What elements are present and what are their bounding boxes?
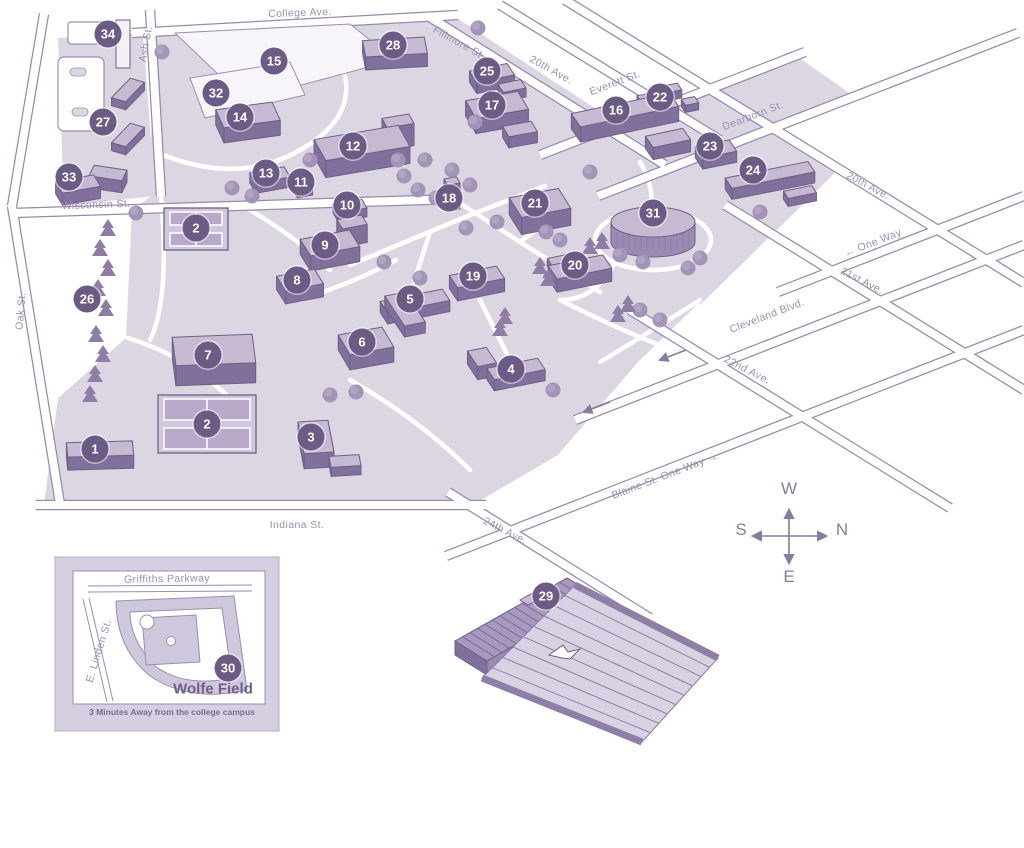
building-marker-19[interactable]: 19 <box>460 263 487 290</box>
building-marker-6[interactable]: 6 <box>349 329 376 356</box>
building-marker-18[interactable]: 18 <box>436 185 463 212</box>
compass-letter-n: N <box>836 520 848 540</box>
inset-field-name: Wolfe Field <box>173 681 253 698</box>
building-marker-26[interactable]: 26 <box>74 286 101 313</box>
building-marker-8[interactable]: 8 <box>284 267 311 294</box>
building-marker-30[interactable]: 30 <box>215 655 242 682</box>
building-marker-24[interactable]: 24 <box>740 157 767 184</box>
building-marker-1[interactable]: 1 <box>82 436 109 463</box>
building-marker-32[interactable]: 32 <box>203 80 230 107</box>
compass-and-inset-art <box>55 510 826 731</box>
building-marker-17[interactable]: 17 <box>479 92 506 119</box>
building-marker-2[interactable]: 2 <box>194 411 221 438</box>
building-marker-23[interactable]: 23 <box>697 133 724 160</box>
building-marker-25[interactable]: 25 <box>474 58 501 85</box>
building-marker-34[interactable]: 34 <box>95 21 122 48</box>
building-marker-20[interactable]: 20 <box>562 252 589 279</box>
street-label-college-ave: College Ave. <box>268 6 332 20</box>
compass-letter-e: E <box>783 567 794 587</box>
building-marker-12[interactable]: 12 <box>340 133 367 160</box>
building-marker-21[interactable]: 21 <box>522 190 549 217</box>
compass-letter-s: S <box>735 520 746 540</box>
inset-note: 3 Minutes Away from the college campus <box>89 707 255 717</box>
building-marker-15[interactable]: 15 <box>261 48 288 75</box>
campus-map: Wolfe Field 3 Minutes Away from the coll… <box>0 0 1024 848</box>
building-marker-7[interactable]: 7 <box>195 342 222 369</box>
campus-map-artwork <box>0 0 1024 848</box>
building-marker-22[interactable]: 22 <box>647 84 674 111</box>
building-marker-27[interactable]: 27 <box>90 109 117 136</box>
inset-street-label-griffiths-parkway: Griffiths Parkway <box>124 572 210 585</box>
street-label-wisconsin-st: Wisconsin St. <box>61 198 130 212</box>
building-marker-2[interactable]: 2 <box>183 215 210 242</box>
building-marker-9[interactable]: 9 <box>312 232 339 259</box>
building-marker-28[interactable]: 28 <box>380 32 407 59</box>
building-marker-5[interactable]: 5 <box>397 286 424 313</box>
building-marker-4[interactable]: 4 <box>498 356 525 383</box>
building-marker-3[interactable]: 3 <box>298 424 325 451</box>
building-marker-16[interactable]: 16 <box>603 97 630 124</box>
building-marker-10[interactable]: 10 <box>334 192 361 219</box>
building-marker-14[interactable]: 14 <box>227 104 254 131</box>
street-label-indiana-st: Indiana St. <box>270 519 325 531</box>
building-marker-13[interactable]: 13 <box>253 160 280 187</box>
building-marker-29[interactable]: 29 <box>533 583 560 610</box>
building-marker-31[interactable]: 31 <box>640 200 667 227</box>
building-marker-11[interactable]: 11 <box>288 169 315 196</box>
compass-letter-w: W <box>781 479 797 499</box>
building-marker-33[interactable]: 33 <box>56 164 83 191</box>
